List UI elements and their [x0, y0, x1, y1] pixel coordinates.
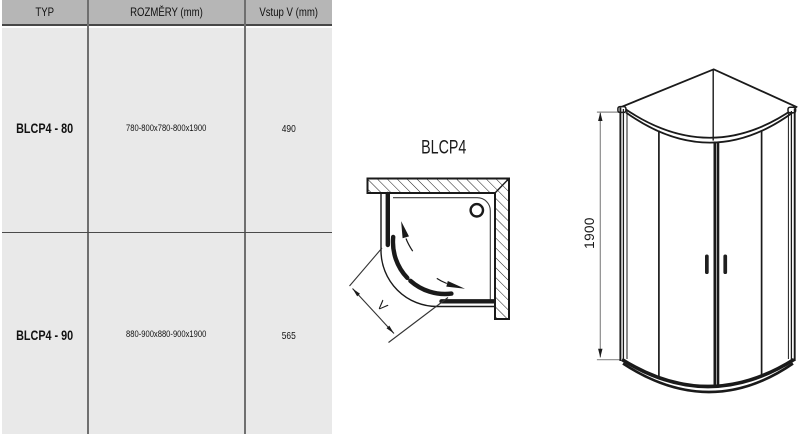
svg-text:1900: 1900 [582, 217, 597, 249]
svg-text:BLCP4: BLCP4 [421, 137, 466, 158]
svg-text:V: V [374, 297, 391, 314]
